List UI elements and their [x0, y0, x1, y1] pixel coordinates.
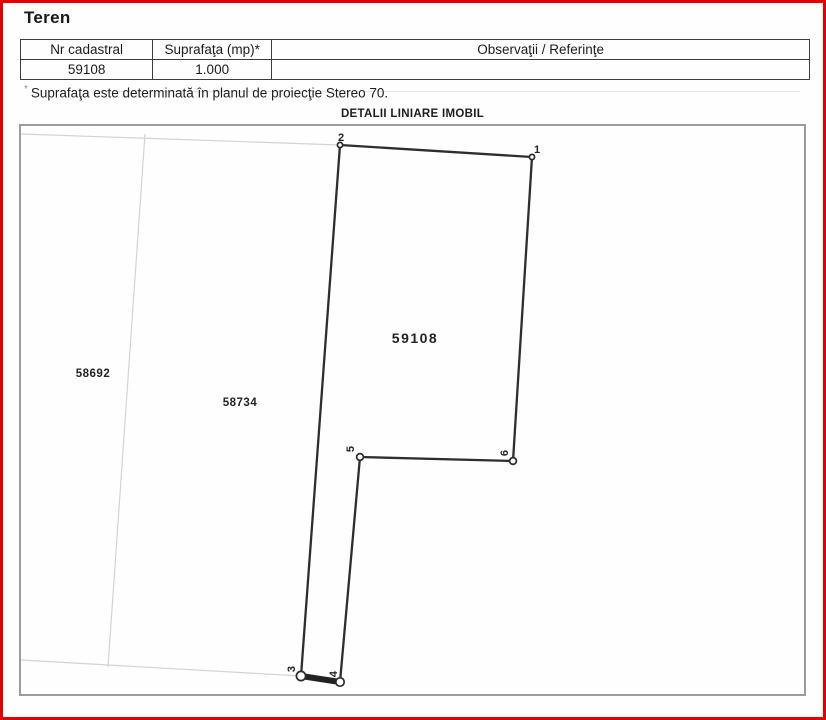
neighbor-boundary-bottom	[21, 660, 301, 676]
header-observatii: Observaţii / Referinţe	[272, 40, 810, 60]
header-suprafata: Suprafaţa (mp)*	[153, 40, 272, 60]
header-nr-cadastral: Nr cadastral	[21, 40, 153, 60]
cell-nr-cadastral: 59108	[21, 60, 153, 80]
footnote-marker: *	[24, 84, 28, 95]
vertex-label-1: 1	[534, 144, 540, 156]
table-header-row: Nr cadastral Suprafaţa (mp)* Observaţii …	[21, 40, 810, 60]
cell-suprafata: 1.000	[153, 60, 272, 80]
table-row: 59108 1.000	[21, 60, 810, 80]
parcel-edge-1-6	[513, 157, 532, 461]
vertex-marker-5	[357, 454, 364, 461]
neighbor-parcel-label-center: 58734	[223, 397, 258, 409]
parcel-edge-5-4	[340, 457, 360, 682]
cell-observatii	[272, 60, 810, 80]
vertex-marker-6	[510, 458, 517, 465]
page-title: Teren	[24, 8, 71, 28]
plan-container: 1 2 3 4 5 6 59108 58692 58734	[19, 124, 806, 696]
cadastral-plan: 1 2 3 4 5 6 59108 58692 58734	[21, 126, 804, 694]
vertex-marker-4	[336, 678, 344, 686]
neighbor-boundary-diagonal	[108, 134, 145, 667]
vertex-label-2: 2	[338, 132, 344, 144]
cadastral-document-page: Teren Nr cadastral Suprafaţa (mp)* Obser…	[0, 0, 826, 720]
neighbor-parcel-label-west: 58692	[76, 368, 110, 380]
vertex-label-4: 4	[328, 670, 340, 677]
parcel-label-main: 59108	[392, 330, 438, 346]
parcel-edge-2-1	[340, 145, 532, 157]
plan-title: DETALII LINIARE IMOBIL	[19, 108, 806, 120]
parcel-edge-2-3	[301, 145, 340, 676]
vertex-label-6: 6	[499, 450, 511, 456]
vertex-label-5: 5	[345, 446, 357, 452]
neighbor-boundary-top	[21, 134, 340, 145]
footnote: *Suprafaţa este determinată în planul de…	[24, 84, 388, 101]
parcel-edge-5-6	[360, 457, 513, 461]
vertex-label-3: 3	[286, 666, 298, 672]
cadastral-table: Nr cadastral Suprafaţa (mp)* Observaţii …	[20, 39, 810, 80]
footnote-text: Suprafaţa este determinată în planul de …	[31, 86, 388, 101]
